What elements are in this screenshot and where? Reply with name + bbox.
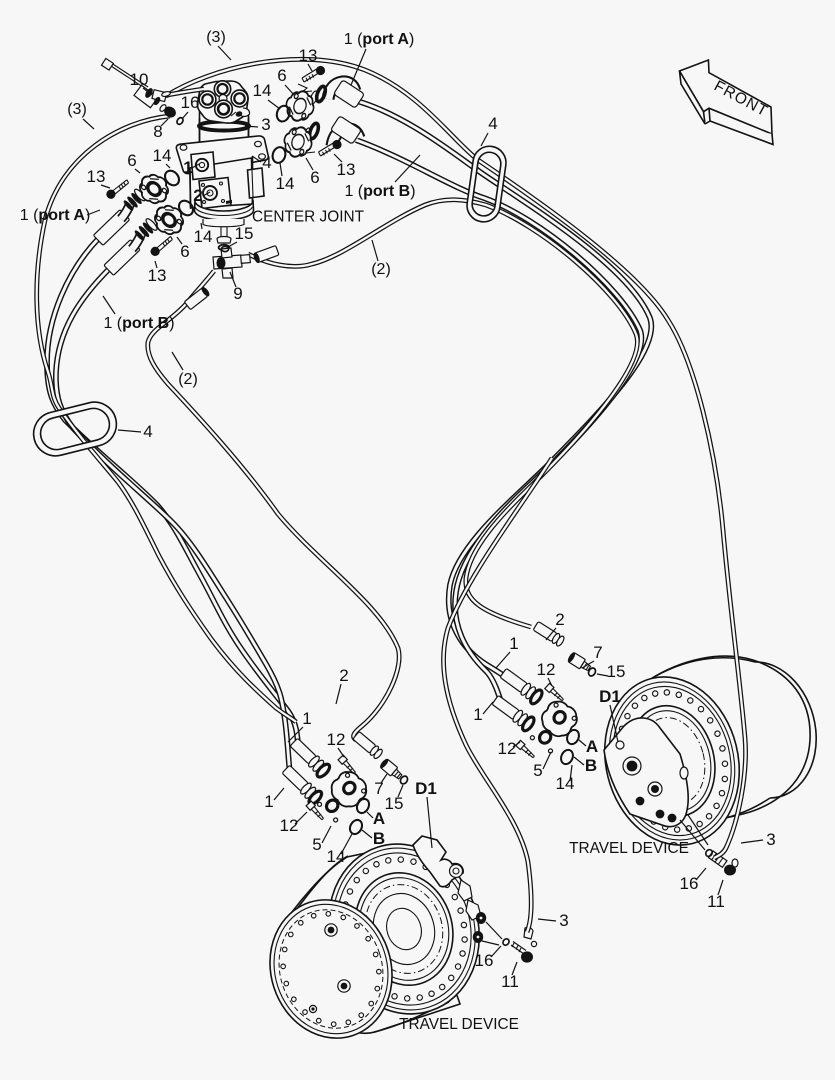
svg-text:14: 14 bbox=[253, 81, 272, 100]
svg-text:14: 14 bbox=[276, 174, 295, 193]
svg-text:2: 2 bbox=[193, 186, 202, 205]
svg-text:14: 14 bbox=[153, 146, 172, 165]
svg-text:3: 3 bbox=[261, 115, 270, 134]
svg-text:2: 2 bbox=[339, 666, 348, 685]
svg-text:(3): (3) bbox=[206, 29, 226, 46]
svg-text:TRAVEL DEVICE: TRAVEL DEVICE bbox=[569, 840, 689, 857]
svg-text:A: A bbox=[586, 737, 598, 756]
svg-text:16: 16 bbox=[181, 93, 200, 112]
svg-text:12: 12 bbox=[537, 660, 556, 679]
svg-text:4: 4 bbox=[143, 422, 152, 441]
svg-text:1: 1 bbox=[183, 158, 192, 177]
svg-text:6: 6 bbox=[277, 66, 286, 85]
svg-text:2: 2 bbox=[555, 610, 564, 629]
svg-text:13: 13 bbox=[299, 46, 318, 65]
svg-text:16: 16 bbox=[680, 874, 699, 893]
svg-text:CENTER JOINT: CENTER JOINT bbox=[252, 209, 365, 226]
svg-text:11: 11 bbox=[501, 972, 519, 991]
svg-text:12: 12 bbox=[280, 816, 299, 835]
svg-text:14: 14 bbox=[194, 227, 213, 246]
svg-text:7: 7 bbox=[593, 643, 602, 662]
svg-text:15: 15 bbox=[235, 224, 254, 243]
svg-text:3: 3 bbox=[559, 911, 568, 930]
svg-text:D1: D1 bbox=[415, 779, 437, 798]
svg-text:(2): (2) bbox=[371, 261, 391, 278]
svg-text:15: 15 bbox=[385, 794, 404, 813]
svg-text:6: 6 bbox=[180, 242, 189, 261]
svg-text:16: 16 bbox=[475, 951, 494, 970]
svg-text:12: 12 bbox=[498, 739, 517, 758]
svg-text:9: 9 bbox=[233, 284, 242, 303]
svg-text:15: 15 bbox=[607, 662, 626, 681]
svg-text:1 (port A): 1 (port A) bbox=[344, 31, 415, 48]
svg-text:B: B bbox=[585, 756, 597, 775]
svg-text:(2): (2) bbox=[178, 371, 198, 388]
svg-text:1: 1 bbox=[264, 792, 273, 811]
svg-text:5: 5 bbox=[312, 835, 321, 854]
svg-text:3: 3 bbox=[766, 830, 775, 849]
svg-text:12: 12 bbox=[327, 730, 346, 749]
svg-text:14: 14 bbox=[556, 774, 575, 793]
svg-text:4: 4 bbox=[488, 114, 497, 133]
svg-text:(3): (3) bbox=[67, 101, 87, 118]
svg-text:13: 13 bbox=[148, 266, 167, 285]
svg-text:4: 4 bbox=[262, 153, 271, 172]
svg-text:13: 13 bbox=[87, 167, 106, 186]
svg-text:1: 1 bbox=[473, 705, 482, 724]
svg-text:11: 11 bbox=[707, 892, 725, 911]
svg-text:10: 10 bbox=[130, 70, 149, 89]
svg-text:6: 6 bbox=[127, 151, 136, 170]
svg-text:A: A bbox=[373, 809, 385, 828]
svg-text:6: 6 bbox=[310, 168, 319, 187]
svg-text:5: 5 bbox=[533, 761, 542, 780]
svg-text:1: 1 bbox=[509, 634, 518, 653]
svg-text:D1: D1 bbox=[599, 687, 621, 706]
svg-text:TRAVEL DEVICE: TRAVEL DEVICE bbox=[399, 1016, 519, 1033]
svg-text:B: B bbox=[373, 829, 385, 848]
svg-text:1 (port B): 1 (port B) bbox=[103, 315, 174, 332]
svg-text:1 (port A): 1 (port A) bbox=[20, 207, 91, 224]
svg-text:1 (port B): 1 (port B) bbox=[344, 183, 415, 200]
svg-text:13: 13 bbox=[337, 160, 356, 179]
svg-text:1: 1 bbox=[302, 709, 311, 728]
